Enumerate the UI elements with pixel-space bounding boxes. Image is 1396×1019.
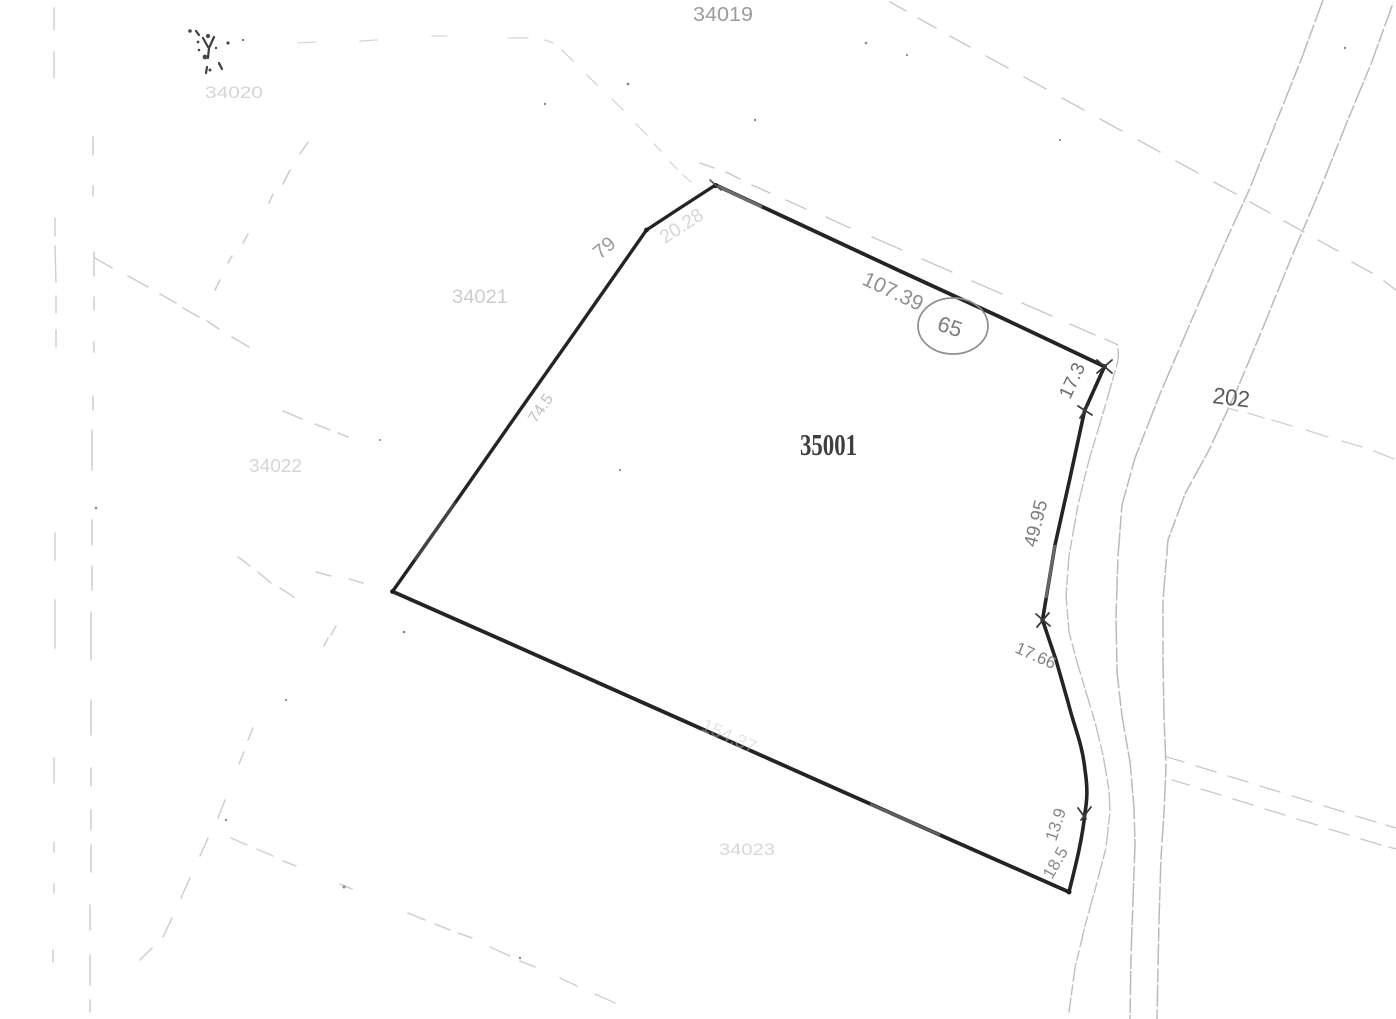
svg-text:34023: 34023 [719,840,775,859]
svg-text:49.95: 49.95 [1020,498,1052,549]
svg-text:154.37: 154.37 [698,715,760,758]
svg-text:79: 79 [589,233,620,264]
svg-text:34021: 34021 [452,287,508,308]
svg-text:202: 202 [1211,382,1251,412]
svg-text:34022: 34022 [249,456,302,476]
svg-text:107.39: 107.39 [859,268,927,316]
svg-text:17.3: 17.3 [1055,360,1090,402]
svg-text:35001: 35001 [800,427,857,462]
svg-text:34019: 34019 [693,4,753,26]
svg-text:20.28: 20.28 [656,205,707,249]
svg-text:18.5: 18.5 [1039,844,1072,882]
svg-text:13.9: 13.9 [1042,806,1070,843]
svg-text:65: 65 [934,311,965,342]
svg-text:34020: 34020 [205,83,263,102]
